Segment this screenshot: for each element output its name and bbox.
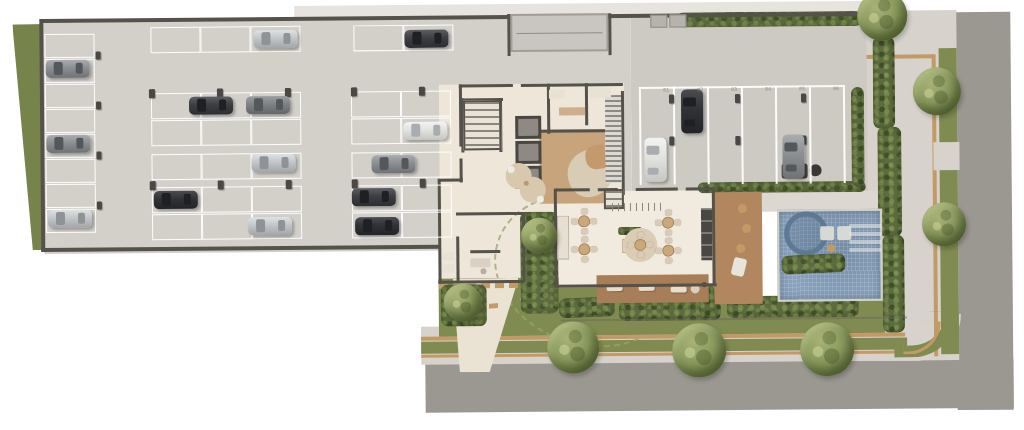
garage-stall [401,91,451,117]
garage-stall [251,119,301,145]
chair [655,219,662,225]
chair [637,232,644,238]
ramp-wall-w [507,14,510,56]
parked-car [246,96,290,114]
garage-stall [46,184,96,208]
pantry-appliances [701,208,712,260]
parked-car [403,122,447,140]
lobby-armchair-2 [537,196,544,203]
chair [655,247,662,253]
table [578,215,590,227]
hedge-right-of-parking [851,87,865,187]
garage-stall [353,25,403,51]
verge-crossing-east [933,142,959,170]
deck-cafe-table-3 [736,244,745,253]
lobby-closet [559,107,585,115]
column [420,179,426,188]
wall-wc-1 [456,212,524,216]
chair [581,236,588,242]
verge-tree [922,202,966,246]
parked-car [189,96,233,114]
column [96,102,101,110]
chair [571,246,578,252]
chair [590,246,597,252]
parked-car [644,138,666,182]
chair [571,218,578,224]
garage-stall [351,118,401,144]
verge-tree [913,67,961,115]
wall-party-n1 [556,188,590,191]
lounge-set [627,232,653,258]
chair [580,208,587,214]
pool-planter [781,253,846,275]
street-tree [547,321,599,373]
pool-lounger-1 [820,226,834,240]
parked-car [352,188,396,206]
column [286,180,292,189]
stall-number: 03 [731,87,741,93]
stall-number: 05 [799,86,809,92]
chair [665,238,672,244]
column [735,136,740,145]
wall-party-n4 [686,187,714,190]
garage-ramp [510,13,608,52]
louver-wall [605,95,622,183]
column [669,95,674,104]
parked-car [355,217,399,235]
courtyard-tree [521,218,557,254]
chair [674,219,681,225]
main-stairs [463,100,501,150]
deck-bench-3 [671,286,687,292]
table [578,243,590,255]
chair [665,230,672,236]
dining-set-1 [571,208,597,234]
column [149,89,155,98]
site-plan-scene: 010203040506 [0,0,1024,430]
garage-stall [201,119,251,145]
chair [674,247,681,253]
chair [581,256,588,262]
wall-wc-3 [456,236,459,282]
elevator-2 [515,141,541,164]
garage-stall [151,154,201,180]
wc-fixture-1 [442,253,454,261]
storage-box-1 [650,15,667,28]
chair [637,252,644,258]
dining-set-2 [571,236,597,262]
wall-party-n2 [598,188,618,191]
parked-car [48,210,92,228]
dining-set-4 [655,238,681,264]
garage-stall [44,34,94,58]
garage-stall [45,109,95,133]
street-tree [672,323,726,377]
table [634,239,646,251]
deck-cafe-table-2 [742,224,751,233]
garage-stall [200,26,250,52]
stall-number: 02 [697,87,707,93]
lobby-armchair-1 [508,166,515,173]
hedge-property-1 [872,37,895,129]
wall-party-n3 [636,188,678,191]
lobby-side-table [524,181,529,186]
parked-car [253,30,297,48]
parked-car [46,135,90,153]
chair [590,218,597,224]
wall-jog [438,178,463,181]
garage-stall [45,84,95,108]
site-plan-canvas: 010203040506 [0,0,1024,430]
table [662,217,674,229]
wall-wc-4 [470,250,500,253]
elevator-1 [515,116,541,139]
column [801,93,806,102]
column [352,179,358,188]
office-chair [480,268,486,274]
chair [581,228,588,234]
garage-stall [402,212,452,238]
stall-number: 06 [833,86,843,92]
storage-box-2 [669,14,686,27]
parked-car [782,134,804,178]
pool-steps [849,224,881,252]
wc-fixture-3 [549,90,565,99]
stall-number: 01 [663,88,673,94]
wall-lobby-north-1 [459,84,513,87]
parked-car [251,154,295,172]
column [735,94,740,103]
garage-stall [202,213,252,239]
garage-stall [351,91,401,117]
street-tree [800,322,854,376]
column [218,181,224,190]
column [419,87,425,96]
wall-partition-2 [585,83,588,125]
wall-partition-3 [539,129,605,133]
garage-stall [152,214,202,240]
office-desk [470,258,490,267]
column [150,181,156,190]
parked-car [681,89,703,133]
ramp-wall-e [608,13,611,55]
column [351,87,357,96]
wc-fixture-2 [442,265,454,273]
garage-stall [201,153,251,179]
parked-car [154,191,198,209]
stall-number: 04 [765,87,775,93]
parked-car [46,60,90,78]
parked-car [404,30,448,48]
column [96,52,101,60]
chair [627,241,634,247]
chair [646,241,653,247]
road-east [954,12,1013,410]
garage-stall [402,185,452,211]
garage-stall [252,186,302,212]
chair [664,210,671,216]
garage-stall [202,186,252,212]
column [96,152,101,160]
pool-side-table [827,244,835,252]
dining-set-3 [655,210,681,236]
column [97,202,102,210]
column [669,137,674,146]
table [662,245,674,257]
parked-car [371,155,415,173]
garage-stall [151,120,201,146]
garage-stall [150,27,200,53]
parked-car [248,217,292,235]
wc-fixture-4 [589,87,611,97]
garden-tree [444,283,482,321]
kitchen-counter [557,216,569,260]
garage-stall [45,159,95,183]
chair [665,258,672,264]
deck-cafe-table-1 [738,204,747,213]
